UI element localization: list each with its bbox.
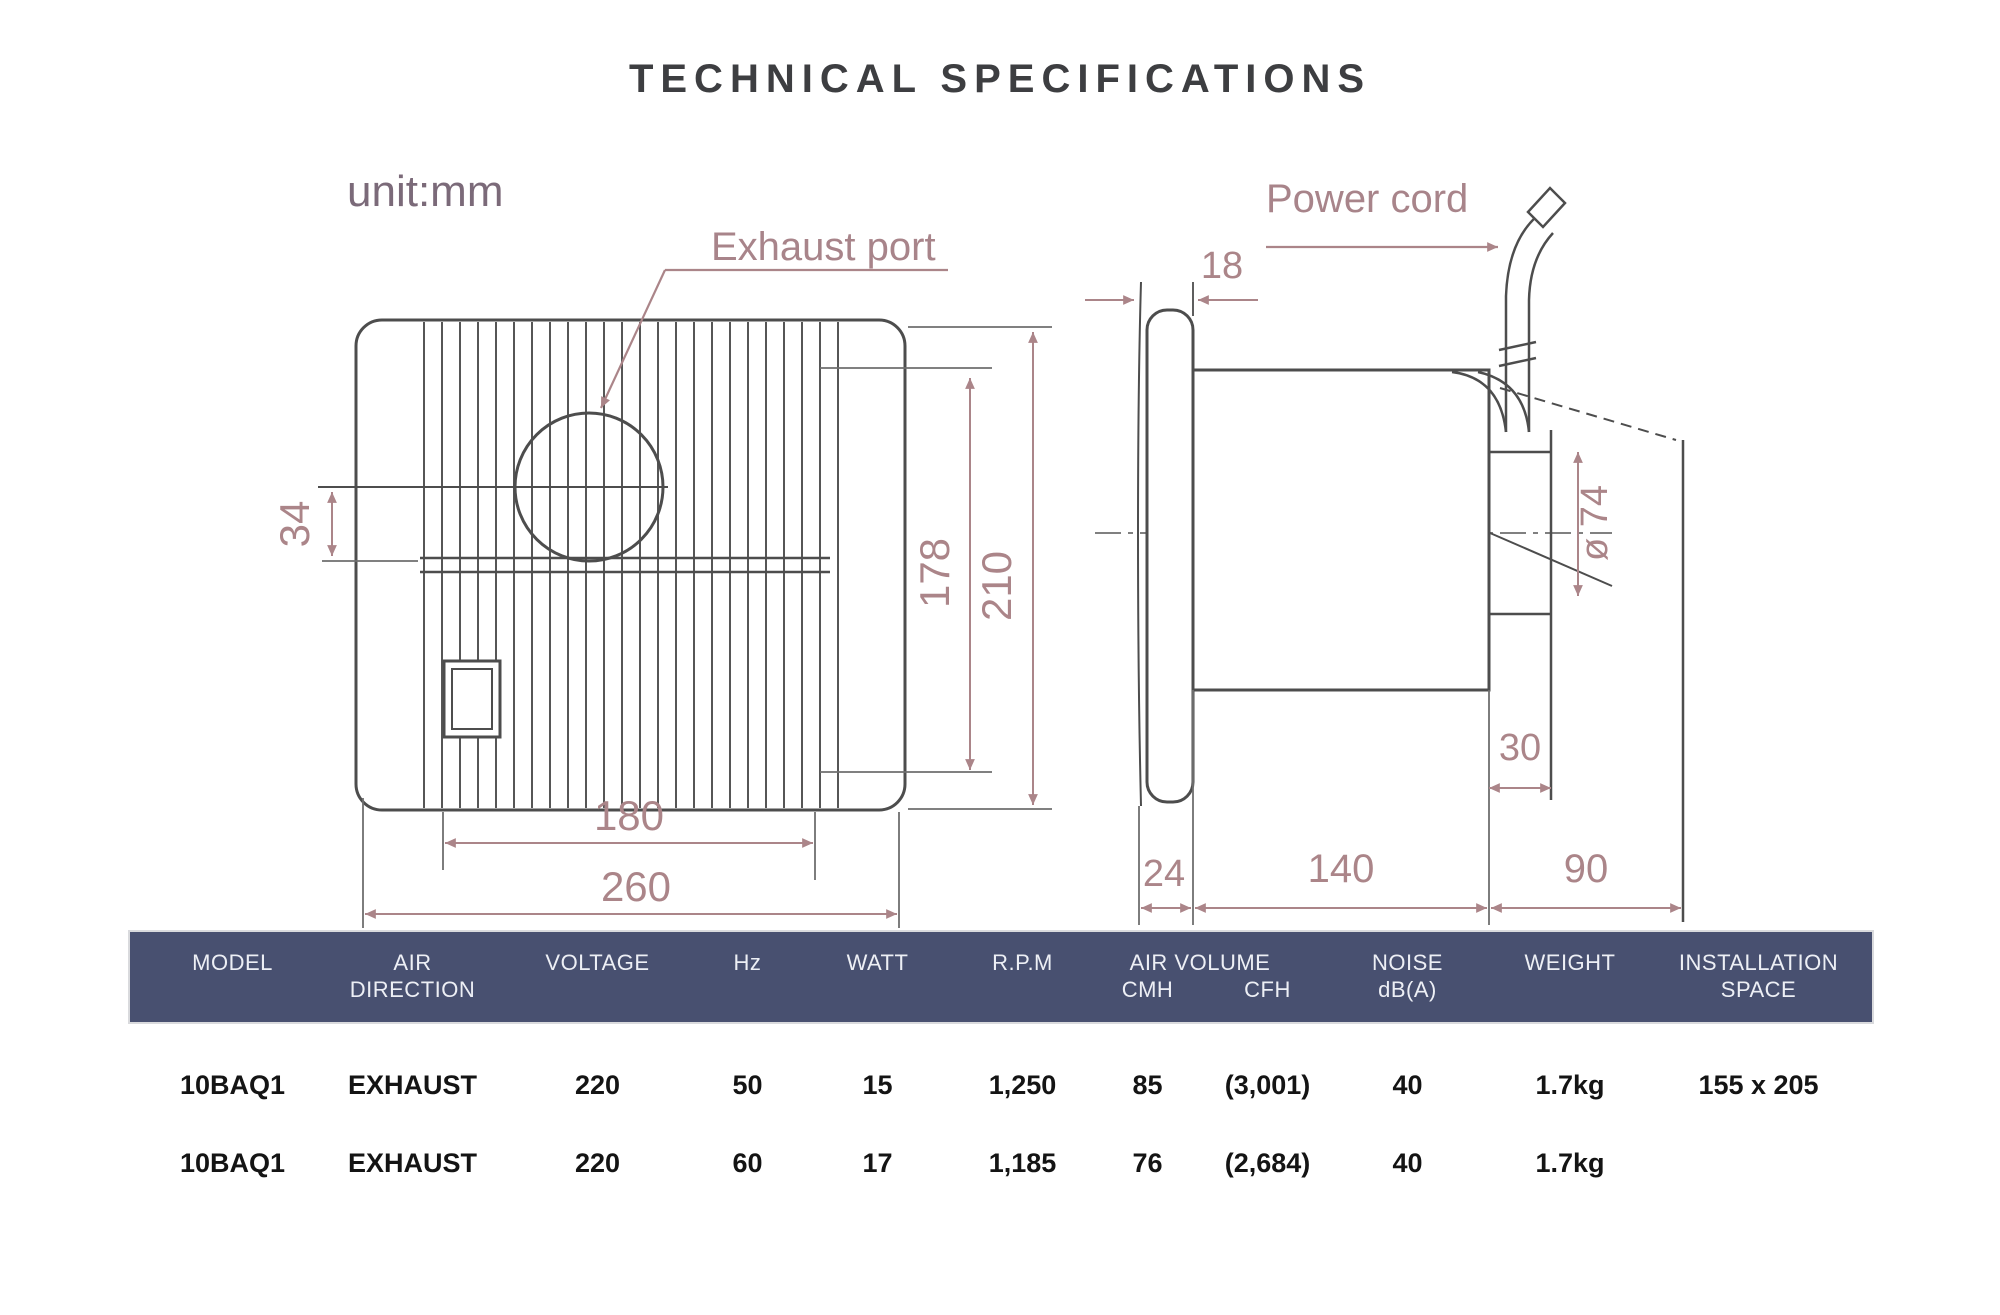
cell-watt: 15 (790, 1070, 965, 1101)
dim-switch-offset: 34 (271, 501, 318, 548)
col-header-installation: INSTALLATION SPACE (1645, 932, 1872, 1022)
dim-flange-depth: 24 (1143, 853, 1185, 895)
col-header-air-volume: AIR VOLUME CMH CFH (1080, 932, 1320, 1022)
cell-model: 10BAQ1 (130, 1148, 335, 1179)
front-view (318, 320, 905, 810)
dim-wall-clearance: 90 (1564, 847, 1609, 891)
cell-weight: 1.7kg (1495, 1070, 1645, 1101)
cell-rpm: 1,185 (965, 1148, 1080, 1179)
cell-air-direction: EXHAUST (335, 1070, 490, 1101)
cell-cmh: 76 (1080, 1148, 1215, 1179)
spec-table: MODEL AIR DIRECTION VOLTAGE Hz WATT R.P.… (130, 932, 1872, 1202)
dim-body-depth: 140 (1308, 847, 1375, 891)
col-header-watt: WATT (790, 932, 965, 1022)
table-row: 10BAQ1 EXHAUST 220 50 15 1,250 85 (3,001… (130, 1046, 1872, 1124)
cell-voltage: 220 (490, 1148, 705, 1179)
cell-cfh: (3,001) (1215, 1070, 1320, 1101)
col-header-cfh: CFH (1215, 976, 1320, 1003)
col-header-cmh: CMH (1080, 976, 1215, 1003)
dim-inner-width: 180 (594, 792, 664, 839)
cell-noise: 40 (1320, 1070, 1495, 1101)
front-panel-outline (356, 320, 905, 810)
dim-duct-diameter: ø 74 (1574, 485, 1616, 561)
table-row: 10BAQ1 EXHAUST 220 60 17 1,185 76 (2,684… (130, 1124, 1872, 1202)
cell-rpm: 1,250 (965, 1070, 1080, 1101)
col-header-rpm: R.P.M (965, 932, 1080, 1022)
spec-sheet-page: TECHNICAL SPECIFICATIONS (0, 0, 2000, 1315)
cell-voltage: 220 (490, 1070, 705, 1101)
cell-hz: 50 (705, 1070, 790, 1101)
col-header-model: MODEL (130, 932, 335, 1022)
flange-outer-line (1138, 282, 1141, 806)
cell-cfh: (2,684) (1215, 1148, 1320, 1179)
fan-body (1193, 370, 1489, 690)
cord-sleeve-marks (1499, 342, 1536, 366)
power-cord-line (1506, 216, 1553, 432)
cell-air-direction: EXHAUST (335, 1148, 490, 1179)
unit-label: unit:mm (347, 167, 503, 216)
exhaust-port-label: Exhaust port (711, 225, 936, 269)
col-header-weight: WEIGHT (1495, 932, 1645, 1022)
cell-noise: 40 (1320, 1148, 1495, 1179)
col-header-hz: Hz (705, 932, 790, 1022)
col-header-noise: NOISE dB(A) (1320, 932, 1495, 1022)
dim-duct-length: 30 (1499, 727, 1541, 769)
cell-cmh: 85 (1080, 1070, 1215, 1101)
spec-table-body: 10BAQ1 EXHAUST 220 50 15 1,250 85 (3,001… (130, 1022, 1872, 1202)
dim-overall-width: 260 (601, 863, 671, 910)
dim-overall-height: 210 (973, 551, 1020, 621)
spec-table-header: MODEL AIR DIRECTION VOLTAGE Hz WATT R.P.… (130, 932, 1872, 1022)
col-header-air-direction: AIR DIRECTION (335, 932, 490, 1022)
cell-model: 10BAQ1 (130, 1070, 335, 1101)
dim-inner-height: 178 (911, 538, 958, 608)
power-cord-label: Power cord (1266, 177, 1468, 221)
technical-drawing: unit:mm Exhaust port 34 178 210 180 260 (0, 0, 2000, 935)
col-header-voltage: VOLTAGE (490, 932, 705, 1022)
cell-weight: 1.7kg (1495, 1148, 1645, 1179)
cell-hz: 60 (705, 1148, 790, 1179)
dim-panel-thickness: 18 (1201, 245, 1243, 287)
cell-watt: 17 (790, 1148, 965, 1179)
flange-profile (1147, 310, 1193, 802)
cell-installation: 155 x 205 (1645, 1070, 1872, 1101)
cord-plug-tip (1528, 188, 1565, 227)
